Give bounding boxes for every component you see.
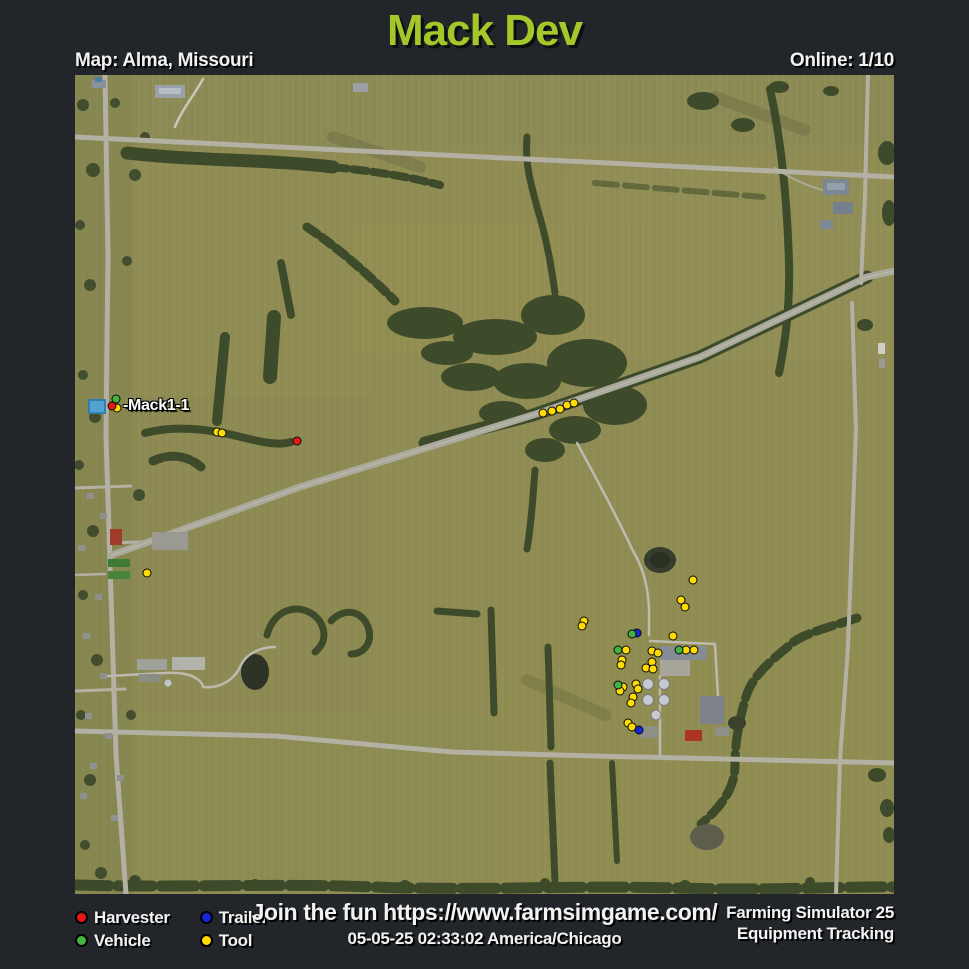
tool-marker (681, 603, 690, 612)
trailer-dot-icon (202, 913, 211, 922)
harvester-marker (293, 437, 302, 446)
timestamp-text: 05-05-25 02:33:02 America/Chicago (348, 929, 622, 949)
legend-label: Harvester (94, 908, 170, 928)
tool-marker (622, 646, 631, 655)
tool-marker (690, 646, 699, 655)
credits-text: Farming Simulator 25 Equipment Tracking (726, 902, 894, 944)
page: Mack Dev Map: Alma, Missouri Online: 1/1… (0, 0, 969, 969)
promo-text: Join the fun https://www.farmsimgame.com… (252, 899, 718, 926)
legend-item-tool: Tool (202, 931, 268, 951)
tool-marker (570, 399, 579, 408)
marker-layer (75, 75, 894, 894)
harvester-marker (108, 402, 117, 411)
legend-item-harvester: Harvester (77, 908, 170, 928)
vehicle-marker (614, 646, 623, 655)
map-name-label: Map: Alma, Missouri (75, 50, 253, 72)
online-count-label: Online: 1/10 (790, 50, 894, 72)
legend-item-vehicle: Vehicle (77, 931, 170, 951)
tool-marker (539, 409, 548, 418)
tool-marker (578, 622, 587, 631)
vehicle-dot-icon (77, 936, 86, 945)
tool-marker (649, 665, 658, 674)
vehicle-marker (628, 630, 637, 639)
tool-marker (627, 699, 636, 708)
legend-label: Vehicle (94, 931, 151, 951)
vehicle-marker (614, 681, 623, 690)
tool-marker (689, 576, 698, 585)
page-title: Mack Dev (0, 6, 969, 56)
tool-marker (617, 661, 626, 670)
credits-line2: Equipment Tracking (726, 923, 894, 944)
vehicle-marker (675, 646, 684, 655)
legend-label: Tool (219, 931, 252, 951)
credits-line1: Farming Simulator 25 (726, 902, 894, 923)
harvester-dot-icon (77, 913, 86, 922)
tool-marker (143, 569, 152, 578)
tool-marker (218, 429, 227, 438)
player-name-label: -Mack1-1 (123, 397, 189, 415)
legend: HarvesterVehicleTrailerTool (77, 906, 268, 952)
tool-marker (654, 649, 663, 658)
trailer-marker (635, 726, 644, 735)
map-view: -Mack1-1 (75, 75, 894, 894)
tool-marker (669, 632, 678, 641)
tool-dot-icon (202, 936, 211, 945)
